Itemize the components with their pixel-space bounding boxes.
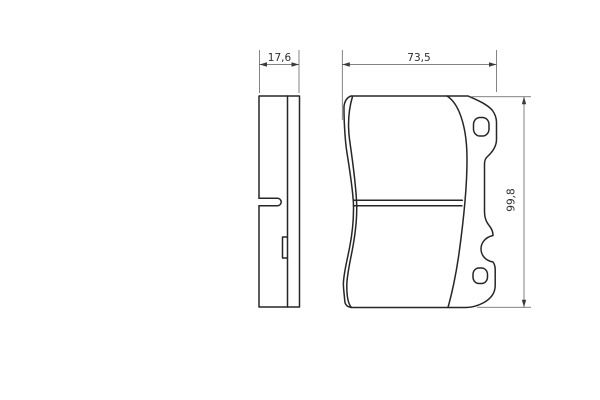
upper-mounting-hole [474, 118, 490, 137]
dimension-label-side-width: 17,6 [268, 52, 292, 64]
dimension-front-height: 99,8 [470, 97, 531, 307]
side-view [259, 96, 300, 307]
front-view [343, 96, 496, 308]
arrow-left-icon [260, 62, 268, 66]
friction-left-edge [347, 97, 357, 308]
technical-drawing-page: 17,6 73,5 99,8 [0, 0, 600, 400]
dimension-front-width: 73,5 [342, 50, 496, 120]
arrow-left-icon [342, 62, 350, 66]
dimension-label-front-width: 73,5 [407, 52, 430, 64]
lower-mounting-hole [473, 268, 488, 284]
dimension-label-front-height: 99,8 [506, 188, 518, 211]
arrow-right-icon [292, 62, 300, 66]
friction-right-edge [447, 96, 467, 308]
side-view-outline [259, 96, 300, 307]
arrow-down-icon [522, 300, 526, 308]
arrow-right-icon [489, 62, 497, 66]
dimension-side-width: 17,6 [260, 50, 300, 93]
arrow-up-icon [522, 97, 526, 105]
brake-pad-dimension-drawing: 17,6 73,5 99,8 [0, 0, 600, 400]
side-view-groove-notch [259, 198, 281, 205]
